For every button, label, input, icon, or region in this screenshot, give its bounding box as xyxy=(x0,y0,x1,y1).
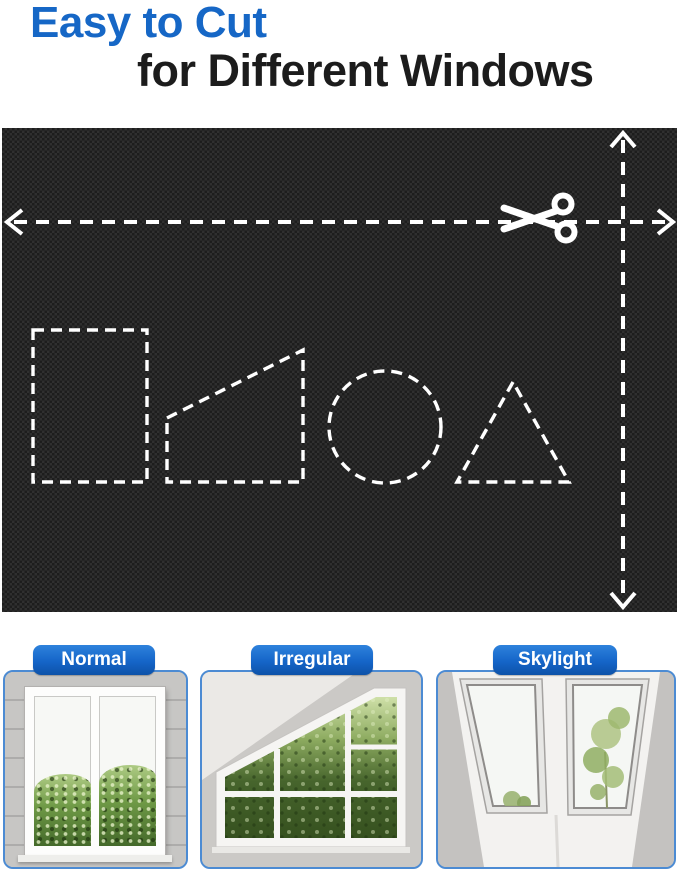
normal-window-pane-right xyxy=(99,696,156,846)
foliage xyxy=(99,765,156,846)
card-normal-window xyxy=(3,670,188,869)
irregular-window-photo xyxy=(202,672,421,867)
cut-shape-circle xyxy=(329,371,441,483)
fabric-swatch xyxy=(2,128,677,612)
label-normal-text: Normal xyxy=(61,649,126,671)
label-skylight-text: Skylight xyxy=(518,649,592,671)
label-normal: Normal xyxy=(33,645,155,675)
card-skylight-window xyxy=(436,670,676,869)
height-cut-arrow-icon xyxy=(611,133,635,607)
normal-window-photo xyxy=(25,687,165,855)
scissors-icon xyxy=(504,196,575,241)
title-line-1: Easy to Cut xyxy=(30,0,267,48)
label-irregular-text: Irregular xyxy=(273,649,350,671)
skylight-window-photo xyxy=(438,672,674,867)
cut-shape-rectangle xyxy=(33,330,147,482)
normal-window-pane-left xyxy=(34,696,91,846)
foliage xyxy=(34,774,91,846)
label-irregular: Irregular xyxy=(251,645,373,675)
cut-guides-overlay xyxy=(2,128,677,612)
product-infographic: Easy to Cut for Different Windows xyxy=(0,0,679,874)
title-line-2: for Different Windows xyxy=(137,45,594,97)
card-irregular-window xyxy=(200,670,423,869)
label-skylight: Skylight xyxy=(493,645,617,675)
cut-shape-triangle xyxy=(457,382,569,482)
window-sill xyxy=(18,855,172,862)
cut-shape-trapezoid xyxy=(167,350,303,482)
